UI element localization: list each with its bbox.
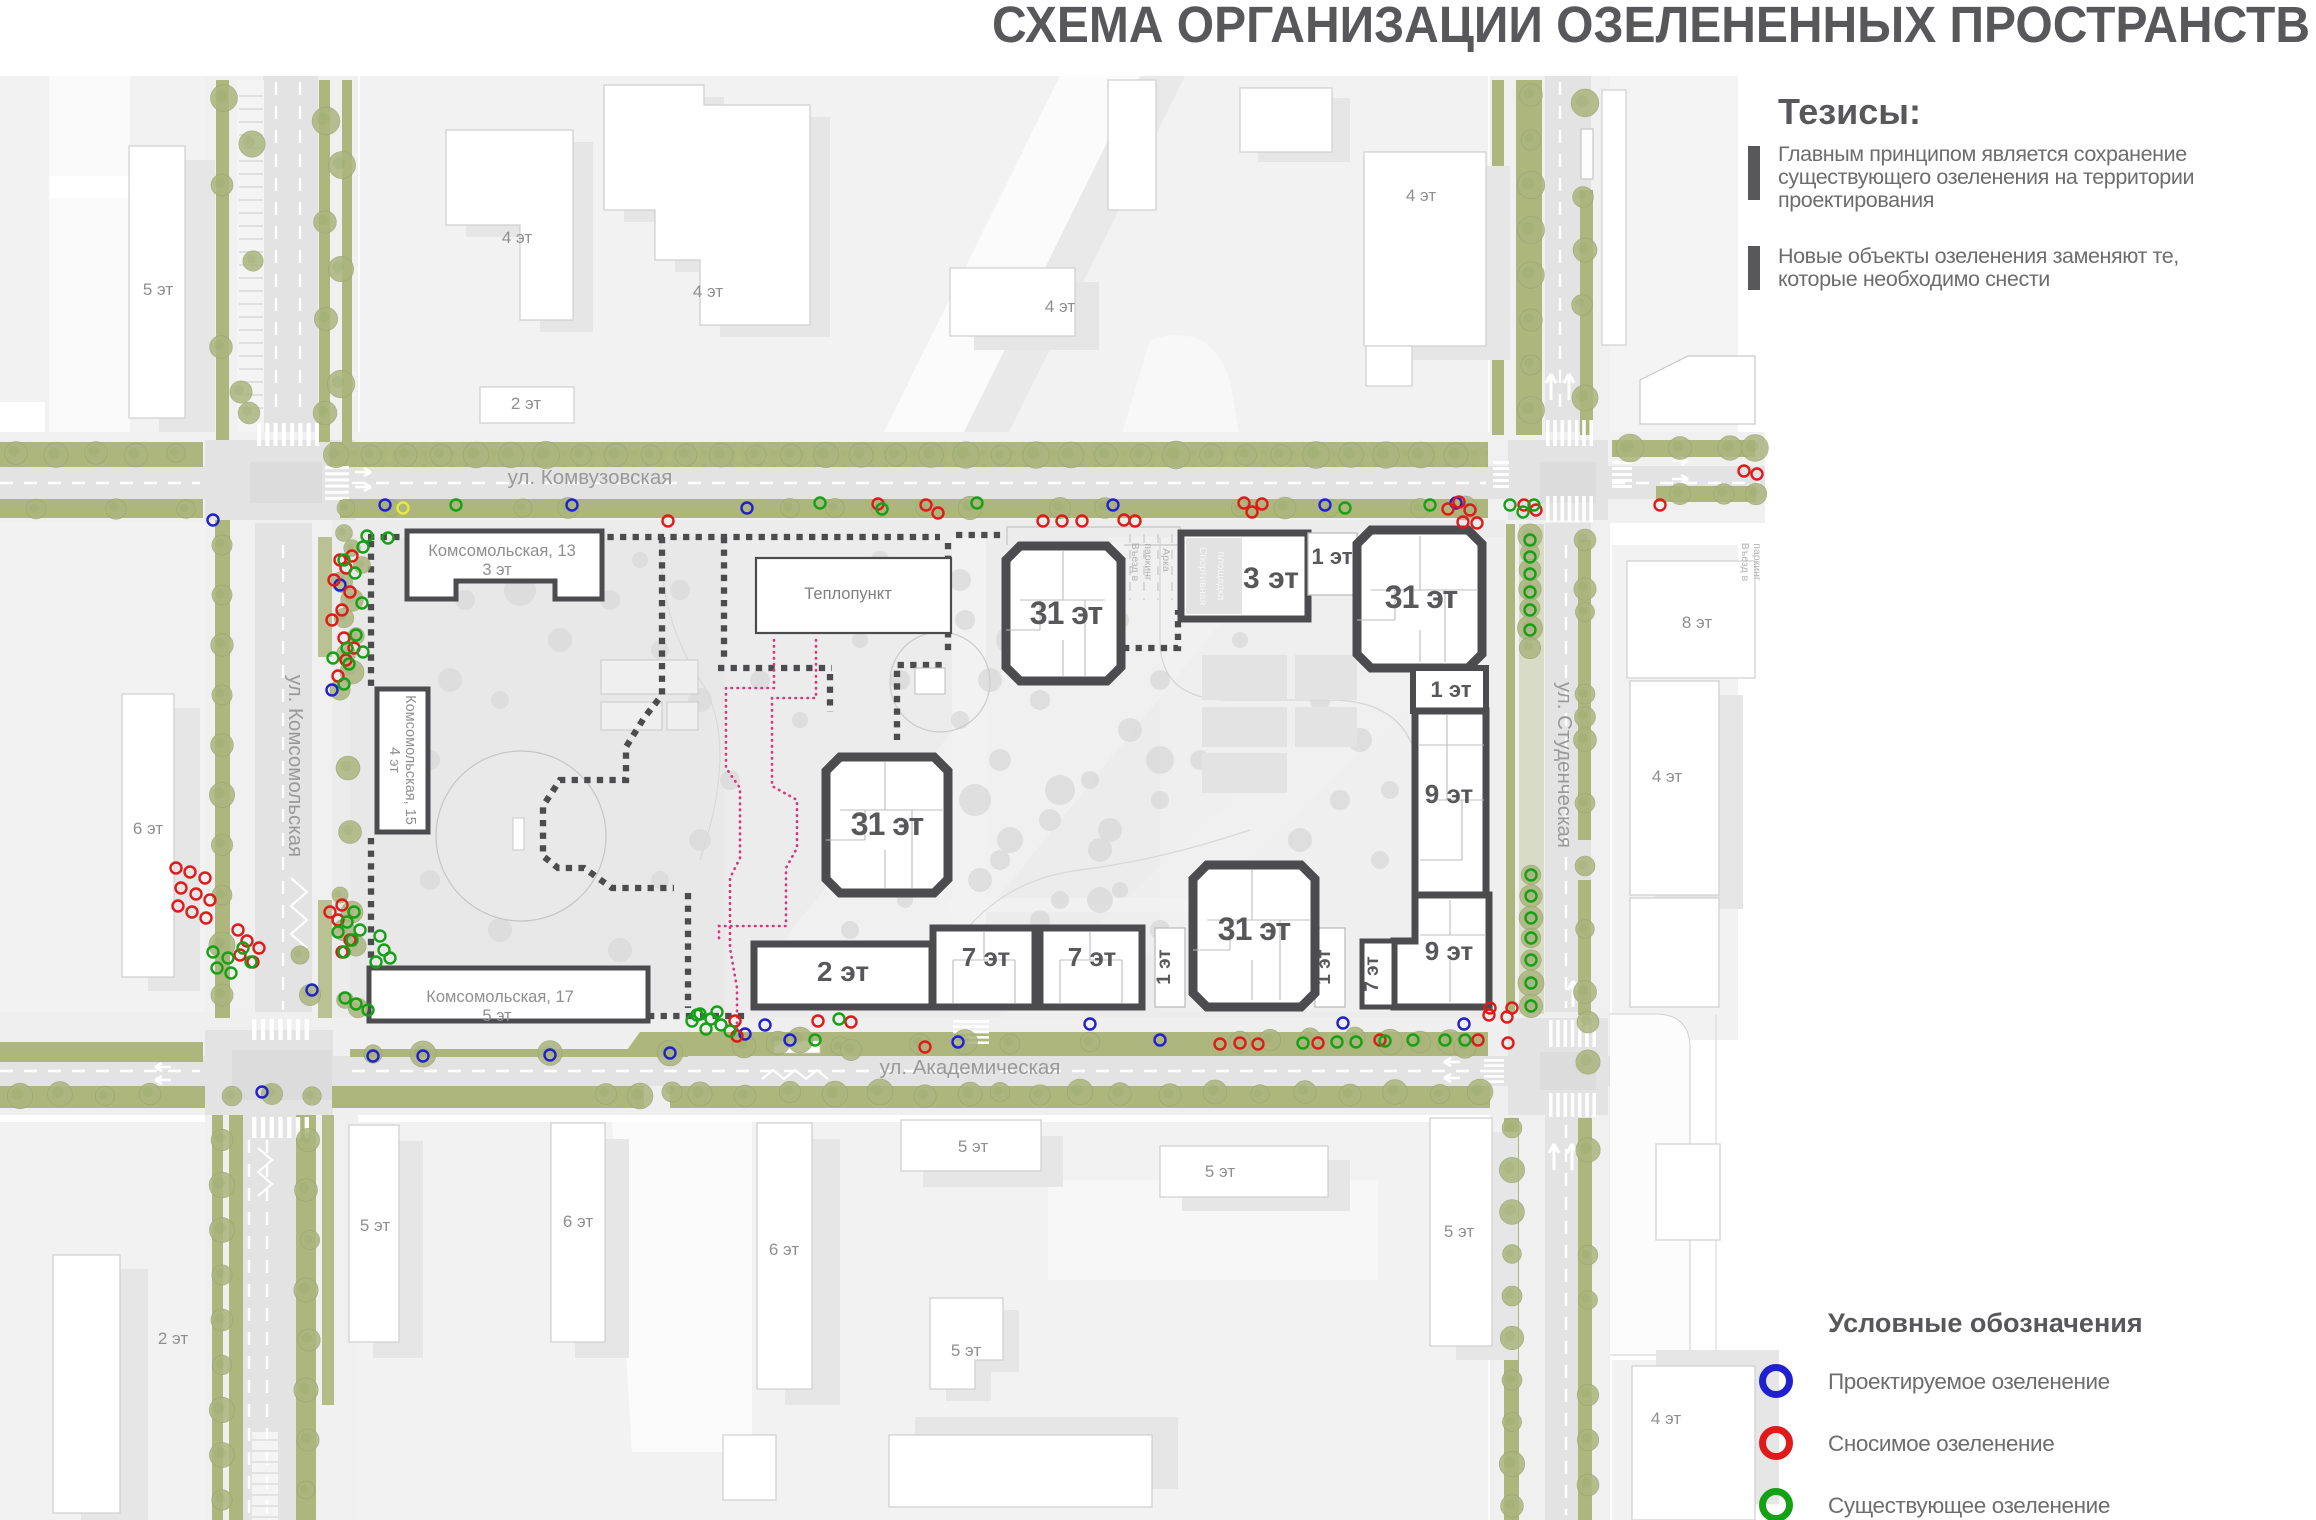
svg-text:Въезд в: Въезд в bbox=[1739, 543, 1751, 582]
svg-text:6 эт: 6 эт bbox=[769, 1240, 799, 1259]
svg-text:6 эт: 6 эт bbox=[563, 1212, 593, 1231]
svg-text:6 эт: 6 эт bbox=[133, 819, 163, 838]
svg-text:Условные обозначения: Условные обозначения bbox=[1828, 1308, 2143, 1338]
svg-text:паркинг: паркинг bbox=[1751, 543, 1763, 581]
svg-text:3 эт: 3 эт bbox=[1243, 562, 1299, 595]
svg-text:Тезисы:: Тезисы: bbox=[1778, 91, 1921, 132]
svg-text:7 эт: 7 эт bbox=[1362, 956, 1383, 991]
svg-text:Арка: Арка bbox=[1160, 548, 1172, 572]
svg-text:4 эт: 4 эт bbox=[1045, 297, 1075, 316]
svg-text:Комсомольская, 13: Комсомольская, 13 bbox=[428, 542, 576, 560]
svg-text:31 эт: 31 эт bbox=[1218, 911, 1291, 947]
svg-text:4 эт: 4 эт bbox=[502, 228, 532, 247]
svg-text:Сносимое озеленение: Сносимое озеленение bbox=[1828, 1431, 2054, 1456]
svg-text:паркинг: паркинг bbox=[1142, 543, 1154, 581]
svg-text:31 эт: 31 эт bbox=[1385, 579, 1458, 615]
svg-text:Спортивная: Спортивная bbox=[1197, 547, 1209, 605]
svg-text:СХЕМА ОРГАНИЗАЦИИ ОЗЕЛЕНЕННЫХ: СХЕМА ОРГАНИЗАЦИИ ОЗЕЛЕНЕННЫХ ПРОСТРАНСТ… bbox=[992, 0, 2310, 53]
svg-text:1 эт: 1 эт bbox=[1154, 949, 1175, 984]
svg-text:2 эт: 2 эт bbox=[511, 394, 541, 413]
svg-text:существующего озеленения на те: существующего озеленения на территории bbox=[1778, 165, 2194, 189]
svg-text:5 эт: 5 эт bbox=[1205, 1162, 1235, 1181]
svg-text:9 эт: 9 эт bbox=[1425, 779, 1474, 809]
svg-text:Въезд в: Въезд в bbox=[1129, 543, 1141, 582]
svg-text:Теплопункт: Теплопункт bbox=[804, 585, 892, 603]
svg-text:Главным принципом является сох: Главным принципом является сохранение bbox=[1778, 142, 2187, 166]
svg-text:7 эт: 7 эт bbox=[1068, 942, 1117, 972]
svg-text:4 эт: 4 эт bbox=[386, 747, 402, 773]
svg-text:Комсомольская, 15: Комсомольская, 15 bbox=[402, 695, 418, 825]
svg-text:7 эт: 7 эт bbox=[962, 942, 1011, 972]
svg-text:ул. Комвузовская: ул. Комвузовская bbox=[508, 466, 673, 489]
svg-text:5 эт: 5 эт bbox=[958, 1137, 988, 1156]
svg-text:9 эт: 9 эт bbox=[1425, 936, 1474, 966]
svg-text:Новые объекты озеленения замен: Новые объекты озеленения заменяют те, bbox=[1778, 244, 2179, 268]
svg-text:5 эт: 5 эт bbox=[1444, 1222, 1474, 1241]
svg-text:1 эт: 1 эт bbox=[1312, 544, 1353, 569]
svg-text:8 эт: 8 эт bbox=[1682, 613, 1712, 632]
svg-text:31 эт: 31 эт bbox=[1030, 595, 1103, 631]
svg-text:Проектируемое озеленение: Проектируемое озеленение bbox=[1828, 1369, 2110, 1394]
svg-text:ул. Комсомольская: ул. Комсомольская bbox=[284, 675, 307, 857]
svg-text:5 эт: 5 эт bbox=[143, 280, 173, 299]
svg-text:5 эт: 5 эт bbox=[951, 1341, 981, 1360]
svg-text:площадка: площадка bbox=[1215, 551, 1227, 600]
svg-text:2 эт: 2 эт bbox=[158, 1329, 188, 1348]
svg-text:которые необходимо снести: которые необходимо снести bbox=[1778, 267, 2050, 291]
svg-text:31 эт: 31 эт bbox=[851, 806, 924, 842]
svg-text:ул. Академическая: ул. Академическая bbox=[880, 1056, 1061, 1079]
svg-text:Комсомольская, 17: Комсомольская, 17 bbox=[426, 988, 574, 1006]
svg-text:5 эт: 5 эт bbox=[360, 1216, 390, 1235]
svg-text:4 эт: 4 эт bbox=[693, 282, 723, 301]
svg-text:4 эт: 4 эт bbox=[1652, 767, 1682, 786]
svg-text:Существующее озеленение: Существующее озеленение bbox=[1828, 1493, 2110, 1518]
svg-text:4 эт: 4 эт bbox=[1406, 186, 1436, 205]
svg-text:ул. Студенческая: ул. Студенческая bbox=[1553, 682, 1576, 848]
svg-text:4 эт: 4 эт bbox=[1651, 1409, 1681, 1428]
svg-text:проектирования: проектирования bbox=[1778, 188, 1934, 212]
svg-text:5 эт: 5 эт bbox=[482, 1007, 512, 1025]
svg-text:3 эт: 3 эт bbox=[482, 561, 512, 579]
svg-text:1 эт: 1 эт bbox=[1431, 677, 1472, 702]
svg-text:2 эт: 2 эт bbox=[817, 956, 869, 987]
